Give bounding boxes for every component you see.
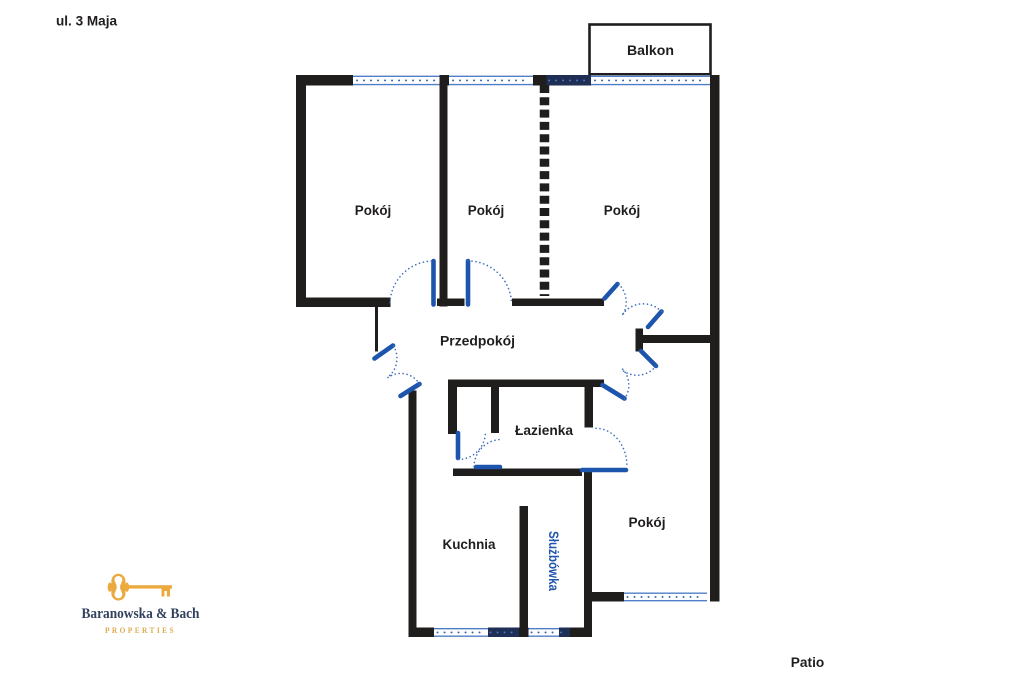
svg-text:ul. 3 Maja: ul. 3 Maja	[56, 14, 117, 29]
svg-text:Baranowska & Bach: Baranowska & Bach	[82, 606, 201, 622]
svg-text:Pokój: Pokój	[629, 515, 666, 530]
svg-text:Kuchnia: Kuchnia	[443, 537, 496, 552]
svg-text:PROPERTIES: PROPERTIES	[105, 626, 176, 635]
svg-text:Pokój: Pokój	[604, 203, 641, 218]
svg-text:Pokój: Pokój	[468, 203, 505, 218]
svg-text:Łazienka: Łazienka	[515, 423, 573, 438]
svg-text:Patio: Patio	[791, 655, 825, 670]
svg-text:Służbówka: Służbówka	[546, 531, 561, 591]
svg-text:Przedpokój: Przedpokój	[440, 334, 515, 349]
svg-text:Pokój: Pokój	[355, 203, 392, 218]
svg-text:Balkon: Balkon	[627, 43, 674, 58]
